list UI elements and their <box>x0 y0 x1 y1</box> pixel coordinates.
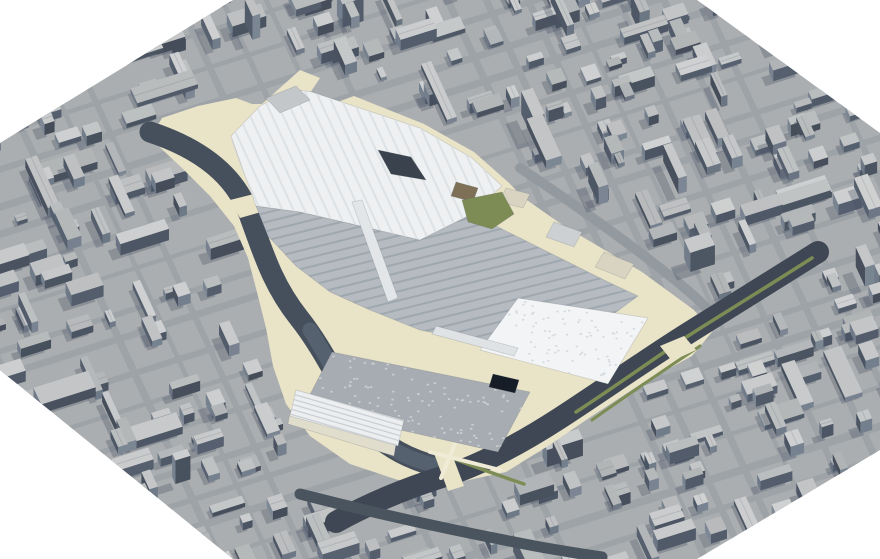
roof-vent <box>349 367 351 369</box>
building-face <box>599 184 609 205</box>
roof-vent <box>448 398 450 400</box>
roof-vent <box>460 432 462 434</box>
roof-vent <box>602 373 604 375</box>
model-area <box>0 0 880 559</box>
roof-vent <box>358 401 360 403</box>
roof-vent <box>549 331 551 333</box>
roof-vent <box>591 320 593 322</box>
roof-vent <box>588 332 590 334</box>
roof-vent <box>443 393 445 395</box>
roof-vent <box>534 346 536 348</box>
roof-vent <box>563 311 565 313</box>
roof-vent <box>408 400 410 402</box>
roof-vent <box>615 338 617 340</box>
roof-vent <box>579 333 581 335</box>
roof-vent <box>477 400 479 402</box>
roof-vent <box>457 432 459 434</box>
roof-vent <box>349 360 351 362</box>
roof-vent <box>456 399 458 401</box>
roof-vent <box>428 404 430 406</box>
roof-vent <box>606 356 608 358</box>
roof-vent <box>404 368 406 370</box>
roof-vent <box>443 387 445 389</box>
roof-vent <box>411 431 413 433</box>
roof-vent <box>418 423 420 425</box>
roof-vent <box>370 386 372 388</box>
roof-vent <box>460 429 462 431</box>
roof-vent <box>377 405 379 407</box>
roof-vent <box>491 438 493 440</box>
roof-vent <box>542 361 544 363</box>
roof-vent <box>487 404 489 406</box>
roof-vent <box>556 311 558 313</box>
roof-vent <box>602 336 604 338</box>
roof-vent <box>319 377 321 379</box>
building-face <box>865 264 875 286</box>
roof-vent <box>620 321 622 323</box>
roof-vent <box>544 330 546 332</box>
roof-vent <box>372 363 374 365</box>
roof-vent <box>554 334 556 336</box>
roof-vent <box>392 391 394 393</box>
roof-vent <box>597 358 599 360</box>
roof-vent <box>411 420 413 422</box>
roof-vent <box>597 330 599 332</box>
building-face <box>491 543 497 555</box>
roof-vent <box>494 389 496 391</box>
roof-vent <box>385 368 387 370</box>
roof-vent <box>548 337 550 339</box>
roof-vent <box>608 361 610 363</box>
roof-vent <box>429 391 431 393</box>
roof-vent <box>612 332 614 334</box>
roof-vent <box>353 358 355 360</box>
roof-vent <box>421 400 423 402</box>
roof-vent <box>354 395 356 397</box>
roof-vent <box>471 424 473 426</box>
building-face <box>678 176 686 195</box>
roof-vent <box>564 323 566 325</box>
roof-vent <box>578 319 580 321</box>
roof-vent <box>535 322 537 324</box>
roof-vent <box>566 350 568 352</box>
roof-vent <box>441 428 443 430</box>
roof-vent <box>615 364 617 366</box>
roof-vent <box>577 322 579 324</box>
roof-vent <box>562 318 564 320</box>
roof-vent <box>548 349 550 351</box>
roof-vent <box>398 415 400 417</box>
roof-vent <box>502 437 504 439</box>
roof-vent <box>391 399 393 401</box>
roof-vent <box>584 354 586 356</box>
roof-vent <box>532 326 534 328</box>
roof-vent <box>411 379 413 381</box>
roof-vent <box>555 345 557 347</box>
roof-vent <box>365 386 367 388</box>
roof-vent <box>609 364 611 366</box>
city-model-svg <box>0 0 880 559</box>
roof-vent <box>332 356 334 358</box>
roof-vent <box>531 332 533 334</box>
roof-vent <box>364 362 366 364</box>
roof-vent <box>367 387 369 389</box>
roof-vent <box>571 360 573 362</box>
roof-vent <box>586 312 588 314</box>
roof-vent <box>522 304 524 306</box>
roof-vent <box>369 402 371 404</box>
roof-vent <box>503 394 505 396</box>
roof-vent <box>620 348 622 350</box>
roof-vent <box>532 305 534 307</box>
roof-vent <box>508 314 510 316</box>
roof-vent <box>557 350 559 352</box>
roof-vent <box>523 314 525 316</box>
roof-vent <box>530 341 532 343</box>
roof-vent <box>407 397 409 399</box>
roof-vent <box>387 364 389 366</box>
roof-vent <box>469 401 471 403</box>
roof-vent <box>626 332 628 334</box>
building-face <box>252 14 260 40</box>
roof-vent <box>496 445 498 447</box>
roof-vent <box>330 391 332 393</box>
roof-vent <box>410 416 412 418</box>
roof-vent <box>506 400 508 402</box>
roof-vent <box>489 433 491 435</box>
roof-vent <box>462 399 464 401</box>
roof-vent <box>469 441 471 443</box>
roof-vent <box>467 395 469 397</box>
building-face <box>175 456 190 484</box>
roof-vent <box>440 416 442 418</box>
roof-vent <box>407 420 409 422</box>
roof-vent <box>443 432 445 434</box>
roof-vent <box>434 382 436 384</box>
roof-vent <box>515 325 517 327</box>
roof-vent <box>608 359 610 361</box>
roof-vent <box>353 378 355 380</box>
roof-vent <box>633 328 635 330</box>
roof-vent <box>641 322 643 324</box>
aerial-massing-render <box>0 0 880 559</box>
roof-vent <box>586 336 588 338</box>
roof-vent <box>390 404 392 406</box>
roof-vent <box>453 407 455 409</box>
roof-vent <box>477 445 479 447</box>
roof-vent <box>581 352 583 354</box>
roof-vent <box>349 385 351 387</box>
roof-vent <box>417 393 419 395</box>
roof-vent <box>394 410 396 412</box>
roof-vent <box>546 353 548 355</box>
roof-vent <box>482 397 484 399</box>
roof-vent <box>542 318 544 320</box>
roof-vent <box>392 374 394 376</box>
roof-vent <box>483 401 485 403</box>
roof-vent <box>524 301 526 303</box>
roof-vent <box>501 411 503 413</box>
roof-vent <box>531 360 533 362</box>
roof-vent <box>516 312 518 314</box>
roof-vent <box>356 378 358 380</box>
roof-vent <box>630 335 632 337</box>
roof-vent <box>522 319 524 321</box>
building-face <box>32 321 38 333</box>
roof-vent <box>460 440 462 442</box>
roof-vent <box>568 310 570 312</box>
roof-vent <box>616 332 618 334</box>
roof-vent <box>547 317 549 319</box>
roof-vent <box>322 387 324 389</box>
roof-vent <box>528 353 530 355</box>
roof-vent <box>470 428 472 430</box>
roof-vent <box>450 429 452 431</box>
roof-vent <box>417 410 419 412</box>
roof-vent <box>475 437 477 439</box>
roof-vent <box>427 384 429 386</box>
roof-vent <box>502 396 504 398</box>
roof-vent <box>595 349 597 351</box>
roof-vent <box>433 436 435 438</box>
roof-vent <box>576 346 578 348</box>
roof-vent <box>532 312 534 314</box>
roof-vent <box>554 352 556 354</box>
roof-vent <box>344 387 346 389</box>
roof-vent <box>377 397 379 399</box>
roof-vent <box>432 400 434 402</box>
roof-vent <box>531 313 533 315</box>
roof-vent <box>547 360 549 362</box>
roof-vent <box>349 403 351 405</box>
roof-vent <box>349 381 351 383</box>
roof-vent <box>515 310 517 312</box>
roof-vent <box>595 326 597 328</box>
building-face <box>721 95 727 108</box>
roof-vent <box>579 354 581 356</box>
roof-vent <box>473 435 475 437</box>
roof-vent <box>552 335 554 337</box>
roof-vent <box>566 334 568 336</box>
roof-vent <box>590 335 592 337</box>
